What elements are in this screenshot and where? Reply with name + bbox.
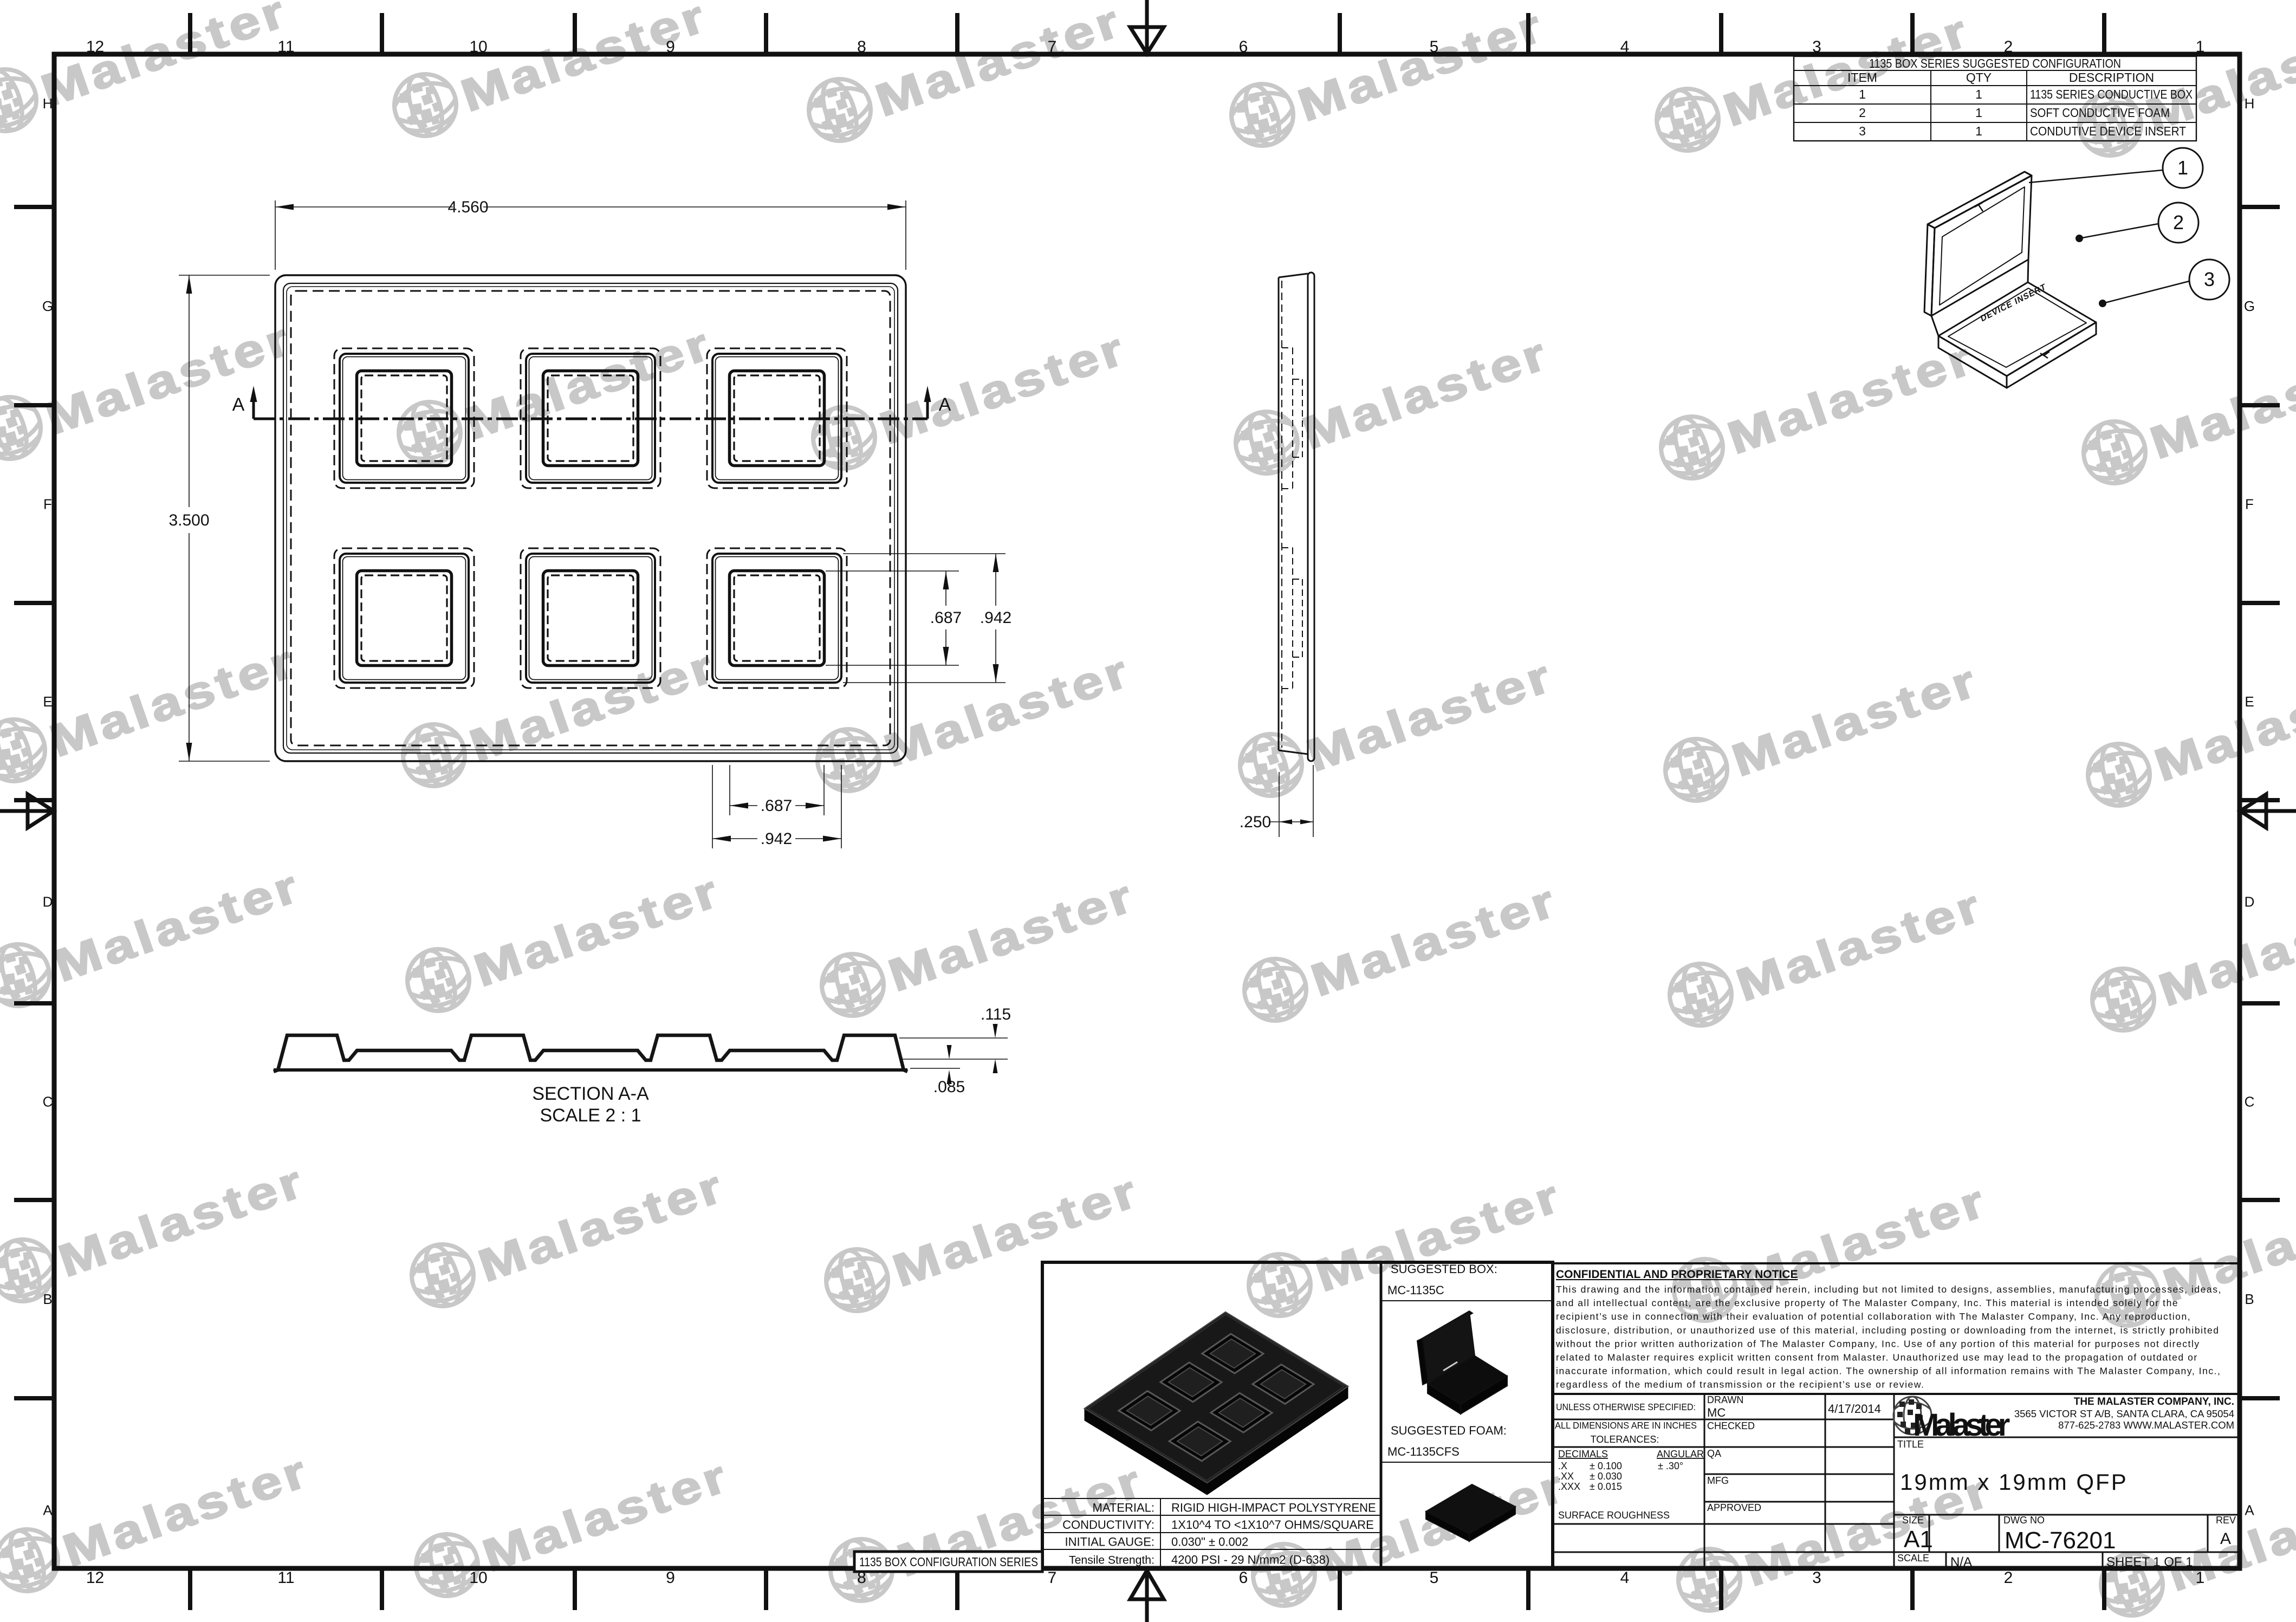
svg-text:7: 7 (1048, 38, 1057, 56)
svg-text:A1: A1 (1904, 1526, 1933, 1553)
svg-text:SECTION A-A: SECTION A-A (532, 1084, 649, 1104)
svg-text:SIZE: SIZE (1902, 1515, 1924, 1526)
svg-text:11: 11 (277, 38, 294, 56)
svg-text:MATERIAL:: MATERIAL: (1092, 1501, 1155, 1515)
svg-text:QA: QA (1707, 1448, 1721, 1459)
svg-text:4200 PSI - 29 N/mm2 (D-638): 4200 PSI - 29 N/mm2 (D-638) (1171, 1553, 1329, 1567)
svg-text:D: D (2245, 894, 2255, 910)
svg-text:Malaster: Malaster (39, 312, 299, 444)
svg-text:Malaster: Malaster (1305, 874, 1564, 1005)
svg-text:.942: .942 (980, 609, 1011, 627)
svg-text:Malaster: Malaster (869, 0, 1128, 126)
svg-text:APPROVED: APPROVED (1707, 1502, 1761, 1513)
svg-text:Malaster: Malaster (2144, 336, 2296, 468)
svg-text:A: A (232, 394, 245, 415)
svg-text:Malaster: Malaster (882, 869, 1141, 1001)
svg-text:0.030" ± 0.002: 0.030" ± 0.002 (1171, 1535, 1248, 1549)
svg-text:DRAWN: DRAWN (1707, 1394, 1743, 1405)
svg-text:CONDUCTIVITY:: CONDUCTIVITY: (1062, 1518, 1155, 1532)
svg-text:Tensile Strength:: Tensile Strength: (1069, 1554, 1155, 1567)
svg-text:F: F (2245, 496, 2254, 512)
svg-text:Malaster: Malaster (48, 859, 307, 991)
svg-text:Malaster: Malaster (459, 317, 718, 449)
svg-text:C: C (2245, 1094, 2255, 1110)
svg-text:.085: .085 (933, 1078, 965, 1096)
svg-text:E: E (2245, 693, 2254, 710)
svg-text:MC-1135C: MC-1135C (1387, 1283, 1444, 1297)
svg-text:1: 1 (2196, 38, 2205, 56)
svg-text:3565 VICTOR ST A/B, SANTA CLAR: 3565 VICTOR ST A/B, SANTA CLARA, CA 9505… (2014, 1408, 2234, 1419)
svg-text:1: 1 (2177, 157, 2188, 179)
svg-text:Malaster: Malaster (886, 1164, 1146, 1296)
svg-text:QTY: QTY (1966, 70, 1992, 85)
svg-text:3: 3 (1859, 124, 1866, 138)
svg-text:TOLERANCES:: TOLERANCES: (1591, 1434, 1659, 1445)
svg-text:11: 11 (277, 1569, 294, 1587)
svg-text:F: F (43, 496, 52, 512)
svg-text:Malaster: Malaster (35, 0, 294, 116)
svg-text:SHEET 1 OF 1: SHEET 1 OF 1 (2106, 1555, 2193, 1569)
svg-text:6: 6 (1239, 38, 1248, 56)
svg-text:1: 1 (2196, 1569, 2205, 1587)
svg-text:3: 3 (1812, 1569, 1821, 1587)
svg-text:B: B (2245, 1291, 2254, 1307)
svg-text:A: A (2245, 1502, 2254, 1519)
svg-text:2: 2 (1859, 106, 1866, 120)
svg-text:1: 1 (1859, 87, 1866, 101)
svg-text:5: 5 (1430, 1569, 1439, 1587)
svg-text:1: 1 (1975, 106, 1982, 120)
svg-text:DWG NO: DWG NO (2003, 1515, 2045, 1526)
svg-text:6: 6 (1239, 1569, 1248, 1587)
svg-text:3.500: 3.500 (168, 511, 209, 529)
svg-text:SUGGESTED BOX:: SUGGESTED BOX: (1391, 1262, 1497, 1276)
svg-text:DESCRIPTION: DESCRIPTION (2069, 70, 2154, 85)
svg-text:.X: .X (1558, 1461, 1567, 1471)
svg-text:DECIMALS: DECIMALS (1558, 1449, 1608, 1459)
svg-text:Malaster: Malaster (2139, 9, 2296, 140)
svg-text:Malaster: Malaster (1296, 327, 1555, 458)
svg-text:A: A (43, 1502, 53, 1519)
svg-text:Malaster: Malaster (43, 634, 303, 766)
svg-text:CHECKED: CHECKED (1707, 1420, 1755, 1431)
svg-text:± .30°: ± .30° (1658, 1461, 1683, 1471)
svg-text:10: 10 (469, 1569, 487, 1587)
svg-text:Malaster: Malaster (1292, 0, 1551, 131)
svg-text:SURFACE ROUGHNESS: SURFACE ROUGHNESS (1558, 1510, 1670, 1521)
svg-text:Malaster: Malaster (468, 864, 727, 996)
svg-text:877-625-2783 WWW.MALASTER.C: 877-625-2783 WWW.MALASTER.COM (2058, 1419, 2234, 1431)
svg-text:4: 4 (1620, 1569, 1630, 1587)
svg-text:8: 8 (857, 38, 866, 56)
svg-text:H: H (43, 95, 53, 112)
svg-text:4: 4 (1620, 38, 1630, 56)
svg-text:Malaster: Malaster (476, 1449, 736, 1581)
svg-text:RIGID HIGH-IMPACT POLYSTYRENE: RIGID HIGH-IMPACT POLYSTYRENE (1171, 1501, 1376, 1515)
svg-text:.687: .687 (930, 609, 962, 627)
svg-text:2: 2 (2004, 1569, 2013, 1587)
svg-text:INITIAL GAUGE:: INITIAL GAUGE: (1065, 1535, 1155, 1549)
svg-text:DEVICE INSERT: DEVICE INSERT (1980, 282, 2047, 323)
svg-text:2: 2 (2173, 211, 2184, 233)
svg-text:REV: REV (2216, 1515, 2236, 1526)
svg-text:Malaster: Malaster (1726, 654, 1985, 786)
svg-text:and all intellectual content,: and all intellectual content, are the ex… (1556, 1297, 2178, 1308)
svg-text:A: A (939, 394, 951, 415)
svg-text:Malaster: Malaster (56, 1444, 316, 1576)
svg-text:4/17/2014: 4/17/2014 (1828, 1402, 1881, 1416)
svg-text:C: C (43, 1094, 53, 1110)
svg-text:D: D (43, 894, 53, 910)
svg-text:THE MALASTER COMPANY, INC.: THE MALASTER COMPANY, INC. (2074, 1396, 2234, 1407)
svg-text:Malaster: Malaster (1913, 1407, 2010, 1443)
svg-text:ANGULAR: ANGULAR (1657, 1449, 1704, 1459)
svg-text:9: 9 (666, 38, 675, 56)
svg-text:1135 SERIES CONDUCTIVE BOX: 1135 SERIES CONDUCTIVE BOX (2030, 87, 2193, 101)
svg-text:12: 12 (86, 38, 104, 56)
svg-text:1X10^4 TO <1X10^7 OHMS/SQUARE: 1X10^4 TO <1X10^7 OHMS/SQUARE (1171, 1518, 1374, 1532)
svg-text:MC-1135CFS: MC-1135CFS (1387, 1445, 1460, 1458)
svg-text:MC-76201: MC-76201 (2005, 1527, 2116, 1554)
svg-text:Malaster: Malaster (878, 644, 1137, 776)
svg-text:This drawing and the informati: This drawing and the information contain… (1556, 1284, 2222, 1295)
svg-text:3: 3 (2204, 268, 2215, 290)
svg-text:2: 2 (2004, 38, 2013, 56)
svg-text:ITEM: ITEM (1847, 70, 1877, 85)
svg-text:9: 9 (666, 1569, 675, 1587)
svg-text:Malaster: Malaster (2148, 659, 2296, 790)
svg-text:MFG: MFG (1707, 1475, 1729, 1486)
svg-text:without the prior written auth: without the prior written authorization … (1555, 1338, 2200, 1349)
svg-text:Malaster: Malaster (52, 1154, 312, 1286)
svg-text:.XX: .XX (1558, 1471, 1574, 1482)
svg-text:disclosure, distribution, or u: disclosure, distribution, or unauthorize… (1556, 1325, 2220, 1335)
svg-text:Malaster: Malaster (472, 1159, 731, 1291)
svg-text:E: E (43, 693, 52, 710)
svg-text:Malaster: Malaster (455, 0, 714, 121)
svg-text:± 0.030: ± 0.030 (1590, 1471, 1622, 1482)
svg-text:4.560: 4.560 (447, 198, 488, 216)
svg-text:1135 BOX SERIES SUGGESTED CONF: 1135 BOX SERIES SUGGESTED CONFIGURATION (1869, 56, 2121, 70)
svg-text:MC: MC (1707, 1406, 1726, 1419)
svg-text:.942: .942 (761, 830, 792, 848)
svg-text:10: 10 (469, 38, 487, 56)
svg-text:CONDUTIVE DEVICE INSERT: CONDUTIVE DEVICE INSERT (2030, 124, 2186, 138)
svg-text:CONFIDENTIAL AND PROPRIETARY N: CONFIDENTIAL AND PROPRIETARY NOTICE (1556, 1268, 1798, 1281)
svg-text:± 0.015: ± 0.015 (1590, 1481, 1622, 1492)
svg-text:12: 12 (86, 1569, 104, 1587)
svg-text:Malaster: Malaster (2152, 884, 2296, 1015)
svg-text:TITLE: TITLE (1897, 1439, 1924, 1450)
svg-text:SCALE: SCALE (1897, 1553, 1929, 1563)
svg-text:1: 1 (1975, 87, 1982, 101)
svg-text:recipient’s use in connection: recipient’s use in connection with their… (1556, 1311, 2191, 1322)
svg-text:regardless of the medium of tr: regardless of the medium of transmission… (1556, 1379, 1924, 1390)
svg-text:1: 1 (1975, 124, 1982, 138)
svg-text:ALL DIMENSIONS ARE IN INCHES: ALL DIMENSIONS ARE IN INCHES (1555, 1420, 1697, 1431)
svg-text:1135 BOX CONFIGURATION SERIES: 1135 BOX CONFIGURATION SERIES (859, 1555, 1038, 1569)
svg-text:Malaster: Malaster (1730, 879, 1989, 1010)
svg-text:SUGGESTED FOAM:: SUGGESTED FOAM: (1391, 1424, 1507, 1437)
svg-text:Malaster: Malaster (463, 639, 723, 771)
svg-text:Malaster: Malaster (1721, 332, 1981, 463)
svg-text:inaccurate information, which: inaccurate information, which could resu… (1556, 1366, 2221, 1377)
svg-text:19mm x 19mm QFP: 19mm x 19mm QFP (1900, 1469, 2128, 1495)
svg-text:SOFT CONDUCTIVE FOAM: SOFT CONDUCTIVE FOAM (2030, 106, 2170, 120)
svg-text:.XXX: .XXX (1558, 1481, 1580, 1492)
svg-text:G: G (2244, 298, 2255, 314)
svg-text:7: 7 (1048, 1569, 1057, 1587)
svg-text:A: A (2220, 1530, 2231, 1548)
svg-text:H: H (2245, 95, 2255, 112)
svg-text:UNLESS OTHERWISE SPECIFIED:: UNLESS OTHERWISE SPECIFIED: (1556, 1402, 1696, 1412)
svg-text:related to Malaster requires e: related to Malaster requires explicit wr… (1556, 1352, 2198, 1363)
svg-text:± 0.100: ± 0.100 (1590, 1461, 1622, 1471)
svg-text:5: 5 (1430, 38, 1439, 56)
svg-text:B: B (43, 1291, 52, 1307)
svg-text:Malaster: Malaster (873, 322, 1133, 453)
svg-text:SCALE 2 : 1: SCALE 2 : 1 (540, 1105, 641, 1126)
svg-text:Malaster: Malaster (1300, 649, 1560, 781)
svg-text:N/A: N/A (1950, 1555, 1972, 1569)
svg-text:Malaster: Malaster (1309, 1169, 1568, 1301)
svg-text:G: G (42, 298, 53, 314)
svg-text:3: 3 (1812, 38, 1821, 56)
svg-text:.687: .687 (761, 797, 792, 815)
svg-text:.250: .250 (1240, 813, 1271, 831)
svg-text:.115: .115 (981, 1005, 1011, 1023)
